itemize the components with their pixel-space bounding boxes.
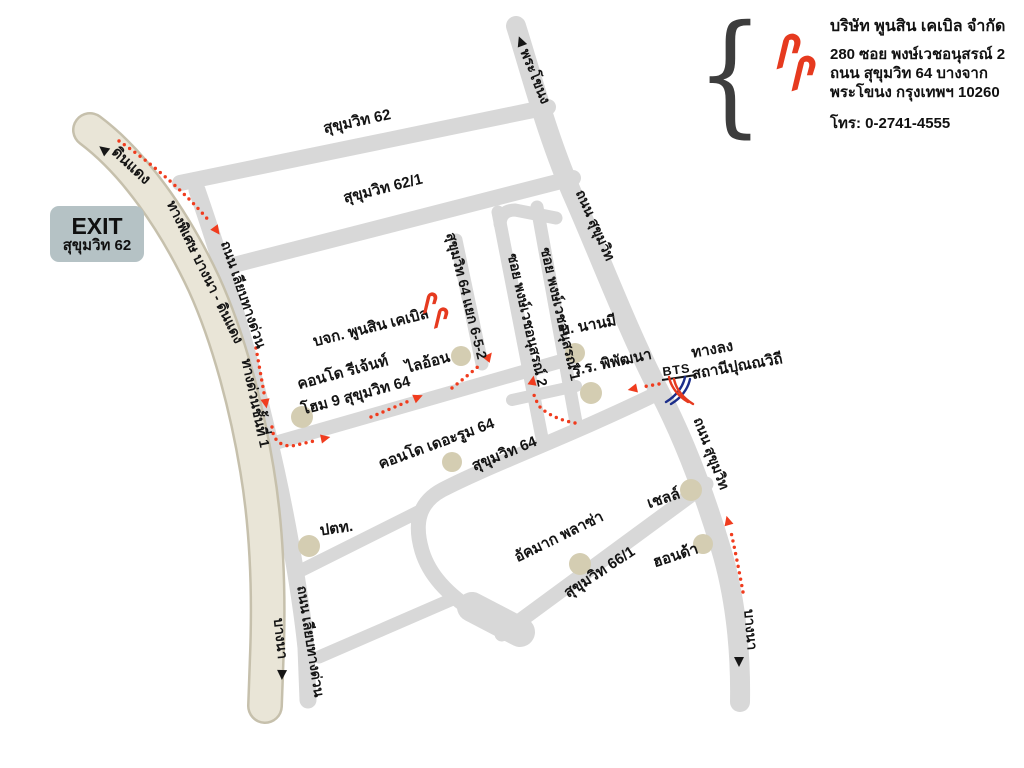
company-logo (774, 31, 824, 97)
exit-badge-line2: สุขุมวิท 62 (63, 238, 131, 254)
map-page: สุขุมวิท 62 สุขุมวิท 62/1 พระโขนง ถนน สุ… (0, 0, 1024, 768)
label-ptt: ปตท. (319, 518, 354, 539)
label-road-sukhumvit-62-1: สุขุมวิท 62/1 (341, 170, 424, 208)
label-soi-yaek-6-5-2: สุขุมวิท 64 แยก 6-5-2 (442, 231, 490, 362)
brace-right: } (1016, 18, 1024, 130)
poi-the-room-64-marker (442, 452, 462, 472)
poi-pipattana-school-marker (580, 382, 602, 404)
company-phone: โทร: 0-2741-4555 (830, 111, 1008, 135)
company-logo-mark-2 (434, 307, 448, 328)
bts-rails-icon (666, 377, 693, 404)
route-arrowhead (627, 384, 638, 395)
road-lower-connector (319, 598, 455, 657)
label-honda: ฮอนด้า (651, 540, 701, 571)
company-address-line3: พระโขนง กรุงเทพฯ 10260 (830, 83, 1008, 102)
company-address-line2: ถนน สุขุมวิท 64 บางจาก (830, 64, 1008, 83)
company-address-line1: 280 ซอย พงษ์เวชอนุสรณ์ 2 (830, 45, 1008, 64)
company-info-panel: { บริษัท พูนสิน เคเบิล จำกัด 280 ซอย พงษ… (688, 14, 1024, 135)
company-title: บริษัท พูนสิน เคเบิล จำกัด (830, 14, 1008, 39)
company-logo-mark-2 (791, 56, 815, 92)
exit-badge: EXIT สุขุมวิท 62 (50, 206, 144, 262)
label-akamak-plaza: อัคมาก พลาซ่า (512, 508, 606, 566)
exit-badge-line1: EXIT (71, 214, 122, 238)
poi-lion-marker (451, 346, 471, 366)
company-logo-mark-1 (776, 34, 800, 70)
label-road-sukhumvit-66-1: สุขุมวิท 66/1 (560, 542, 638, 602)
company-logo-marker (423, 292, 448, 328)
poi-shell-marker (680, 479, 702, 501)
label-road-sukhumvit-62: สุขุมวิท 62 (322, 105, 393, 138)
poi-ptt-marker (298, 535, 320, 557)
road-soi-top-curve (500, 210, 556, 224)
bts-exit-line1: ทางลง (690, 338, 734, 362)
brace-left: { (696, 18, 763, 130)
label-lion: ไลอ้อน (401, 346, 452, 377)
label-company: บจก. พูนสิน เคเบิล (311, 304, 431, 351)
company-info-text: บริษัท พูนสิน เคเบิล จำกัด 280 ซอย พงษ์เ… (830, 14, 1008, 135)
company-logo-mark-1 (423, 292, 437, 313)
bts-station: BTS ทางลง สถานีปุณณวิถี (662, 338, 784, 404)
